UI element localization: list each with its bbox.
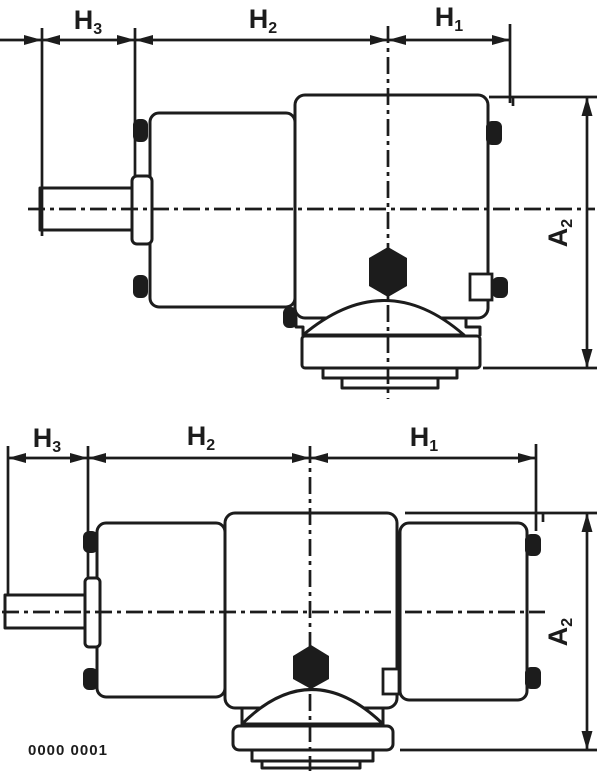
screw-head xyxy=(525,534,541,556)
dim-label-h3: H3 xyxy=(33,423,62,456)
screw-head xyxy=(133,275,148,298)
arrowhead xyxy=(518,453,536,463)
arrowhead xyxy=(310,453,328,463)
arrowhead xyxy=(582,731,593,750)
arrowhead xyxy=(42,35,60,45)
screw-head xyxy=(525,667,541,689)
base-step-2 xyxy=(342,378,438,388)
terminal-bracket xyxy=(383,669,399,694)
arrowhead xyxy=(70,453,88,463)
arrowhead xyxy=(8,453,26,463)
arrowhead xyxy=(492,35,510,45)
screw-head xyxy=(492,277,508,298)
base-step-1 xyxy=(252,750,373,761)
mounting-base xyxy=(302,336,480,368)
terminal-bracket xyxy=(470,274,492,300)
screw-head xyxy=(83,668,98,690)
arrowhead xyxy=(88,453,106,463)
base-connector-right xyxy=(466,318,480,335)
arrowhead xyxy=(292,453,310,463)
arrowhead xyxy=(24,35,42,45)
screw-head xyxy=(486,121,502,145)
gearbox-body xyxy=(97,523,225,697)
arrowhead xyxy=(388,35,406,45)
arrowhead xyxy=(117,35,135,45)
arrowhead xyxy=(582,513,593,532)
dim-label-h1: H1 xyxy=(435,2,464,35)
arrowhead xyxy=(582,97,593,116)
dim-label-h3: H3 xyxy=(74,5,103,38)
figure-top: H3 H2 H1 A2 xyxy=(0,2,597,399)
dim-label-h1: H1 xyxy=(410,422,439,455)
arrowhead xyxy=(370,35,388,45)
gearmotor-dimension-drawing: H3 H2 H1 A2 xyxy=(0,0,600,773)
dim-label-a2: A2 xyxy=(543,618,576,647)
arrowhead xyxy=(582,349,593,368)
base-connector-left xyxy=(296,318,303,335)
arrowhead xyxy=(135,35,153,45)
output-shaft xyxy=(40,188,135,230)
screw-head xyxy=(83,531,98,553)
dim-label-a2: A2 xyxy=(543,219,576,248)
dim-label-h2: H2 xyxy=(187,421,216,454)
dim-label-h2: H2 xyxy=(249,4,278,37)
mounting-base xyxy=(233,726,393,750)
screw-head xyxy=(283,307,297,328)
drawing-caption: 0000 0001 xyxy=(28,742,108,759)
technical-drawing-page: H3 H2 H1 A2 xyxy=(0,0,600,773)
figure-bottom: H3 H2 H1 A2 0000 0001 xyxy=(2,421,597,771)
